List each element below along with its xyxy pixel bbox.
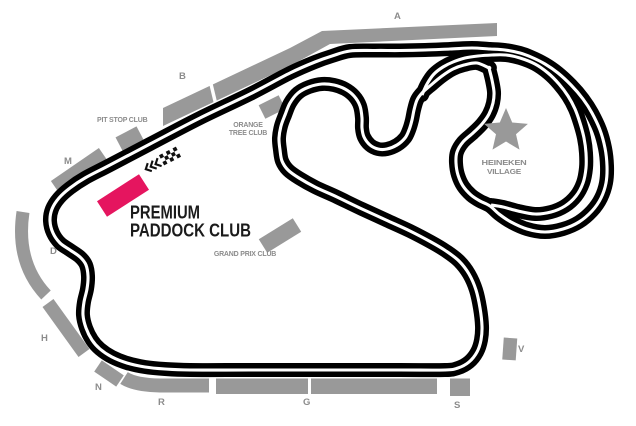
svg-text:HEINEKEN: HEINEKEN [482,160,527,167]
svg-text:N: N [95,382,102,393]
svg-text:GRAND PRIX CLUB: GRAND PRIX CLUB [214,251,276,258]
svg-text:A: A [394,11,401,22]
svg-text:VILLAGE: VILLAGE [487,169,522,176]
svg-text:M: M [64,156,72,167]
svg-text:R: R [158,397,165,408]
svg-text:PREMIUM: PREMIUM [130,203,200,223]
svg-text:V: V [518,344,525,355]
svg-text:B: B [179,71,186,82]
svg-text:ORANGE: ORANGE [233,122,263,129]
svg-text:D: D [50,246,57,257]
svg-text:H: H [41,333,48,344]
svg-text:S: S [454,400,460,411]
svg-text:PIT STOP CLUB: PIT STOP CLUB [97,117,148,124]
svg-text:TREE CLUB: TREE CLUB [229,130,267,137]
svg-text:PADDOCK CLUB: PADDOCK CLUB [130,221,251,241]
svg-text:G: G [303,397,310,408]
